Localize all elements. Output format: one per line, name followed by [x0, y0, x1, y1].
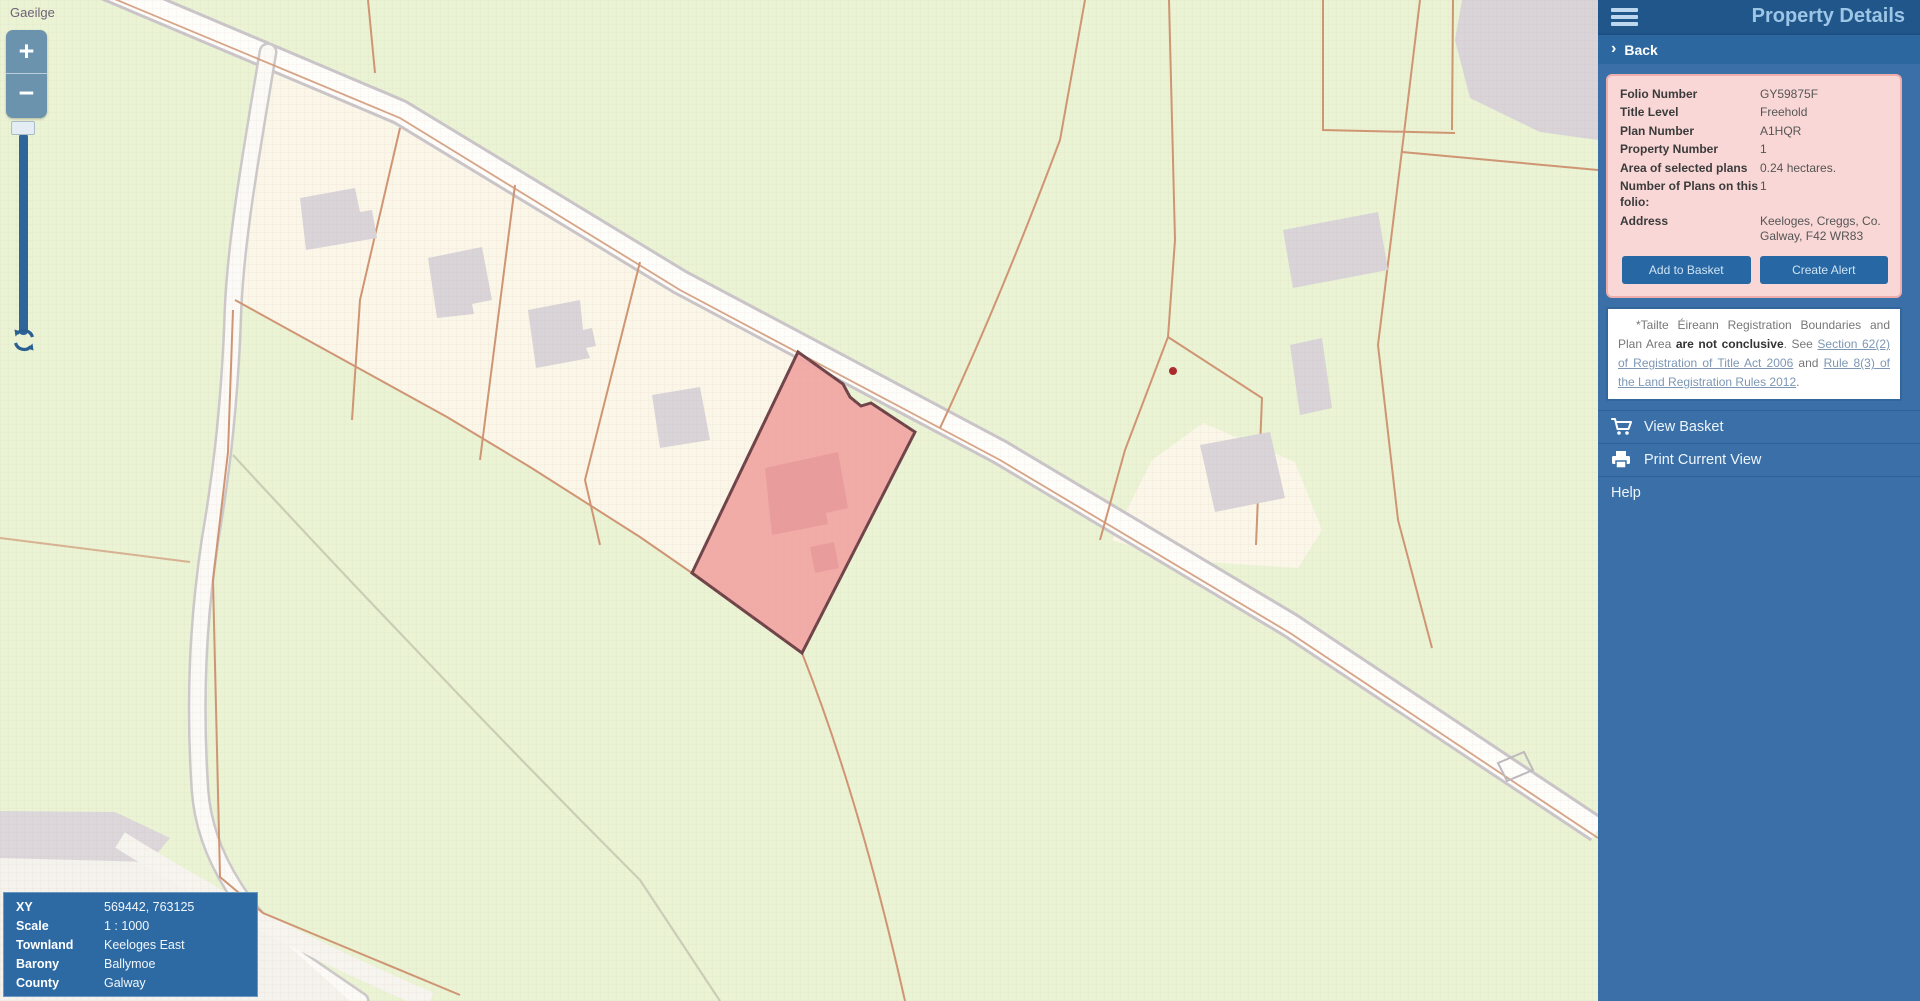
detail-value: 1	[1760, 179, 1767, 210]
create-alert-button[interactable]: Create Alert	[1760, 256, 1889, 284]
coords-value: Galway	[104, 976, 146, 995]
detail-value: A1HQR	[1760, 124, 1801, 140]
coords-label: Scale	[16, 919, 104, 938]
menu-label: Print Current View	[1644, 452, 1761, 468]
coords-value: 569442, 763125	[104, 900, 194, 919]
zoom-out-button[interactable]: −	[6, 74, 47, 118]
disclaimer-text: and	[1793, 356, 1823, 370]
menu-icon[interactable]	[1611, 5, 1638, 29]
language-link[interactable]: Gaeilge	[10, 5, 55, 20]
page-title: Property Details	[1638, 5, 1920, 28]
zoom-control: + −	[6, 30, 47, 118]
detail-label: Address	[1620, 214, 1760, 245]
coords-value: 1 : 1000	[104, 919, 149, 938]
disclaimer-text: . See	[1784, 337, 1818, 351]
zoom-slider-handle[interactable]	[11, 121, 35, 135]
print-current-view-item[interactable]: Print Current View	[1598, 443, 1920, 476]
view-basket-item[interactable]: View Basket	[1598, 410, 1920, 443]
back-button[interactable]: › Back	[1598, 33, 1920, 64]
detail-value: 1	[1760, 142, 1767, 158]
sidebar-header: Property Details	[1598, 0, 1920, 33]
detail-label: Number of Plans on this folio:	[1620, 179, 1760, 210]
disclaimer-bold: are not conclusive	[1676, 337, 1784, 351]
back-label: Back	[1624, 42, 1657, 58]
map-drawing	[0, 0, 1598, 1001]
detail-label: Property Number	[1620, 142, 1760, 158]
zoom-slider-track[interactable]	[19, 133, 28, 335]
detail-value: GY59875F	[1760, 87, 1818, 103]
coords-value: Ballymoe	[104, 957, 155, 976]
detail-value: Keeloges, Creggs, Co. Galway, F42 WR83	[1760, 214, 1890, 245]
refresh-icon[interactable]	[11, 327, 37, 353]
chevron-right-icon: ›	[1611, 40, 1616, 58]
red-marker-dot	[1169, 367, 1177, 375]
sidebar-menu: View Basket Print Current View Help	[1598, 410, 1920, 509]
property-details-sidebar: Property Details › Back Folio NumberGY59…	[1598, 0, 1920, 1001]
boundaries-disclaimer: *Tailte Éireann Registration Boundaries …	[1606, 307, 1902, 401]
menu-label: View Basket	[1644, 419, 1724, 435]
detail-label: Plan Number	[1620, 124, 1760, 140]
detail-label: Area of selected plans	[1620, 161, 1760, 177]
printer-icon	[1611, 451, 1635, 469]
coords-label: Barony	[16, 957, 104, 976]
coords-label: Townland	[16, 938, 104, 957]
disclaimer-text: .	[1796, 375, 1799, 389]
help-item[interactable]: Help	[1598, 476, 1920, 509]
coords-panel: XY569442, 763125 Scale1 : 1000 TownlandK…	[3, 892, 258, 997]
detail-value: Freehold	[1760, 105, 1807, 121]
map-canvas[interactable]: Gaeilge + − XY569442, 763125 Scale1 : 10…	[0, 0, 1598, 1001]
coords-label: XY	[16, 900, 104, 919]
detail-label: Title Level	[1620, 105, 1760, 121]
detail-value: 0.24 hectares.	[1760, 161, 1836, 177]
detail-label: Folio Number	[1620, 87, 1760, 103]
coords-value: Keeloges East	[104, 938, 185, 957]
zoom-in-button[interactable]: +	[6, 30, 47, 74]
coords-label: County	[16, 976, 104, 995]
menu-label: Help	[1611, 485, 1641, 501]
folio-details-panel: Folio NumberGY59875F Title LevelFreehold…	[1606, 74, 1902, 298]
basket-icon	[1611, 418, 1635, 436]
add-to-basket-button[interactable]: Add to Basket	[1622, 256, 1751, 284]
